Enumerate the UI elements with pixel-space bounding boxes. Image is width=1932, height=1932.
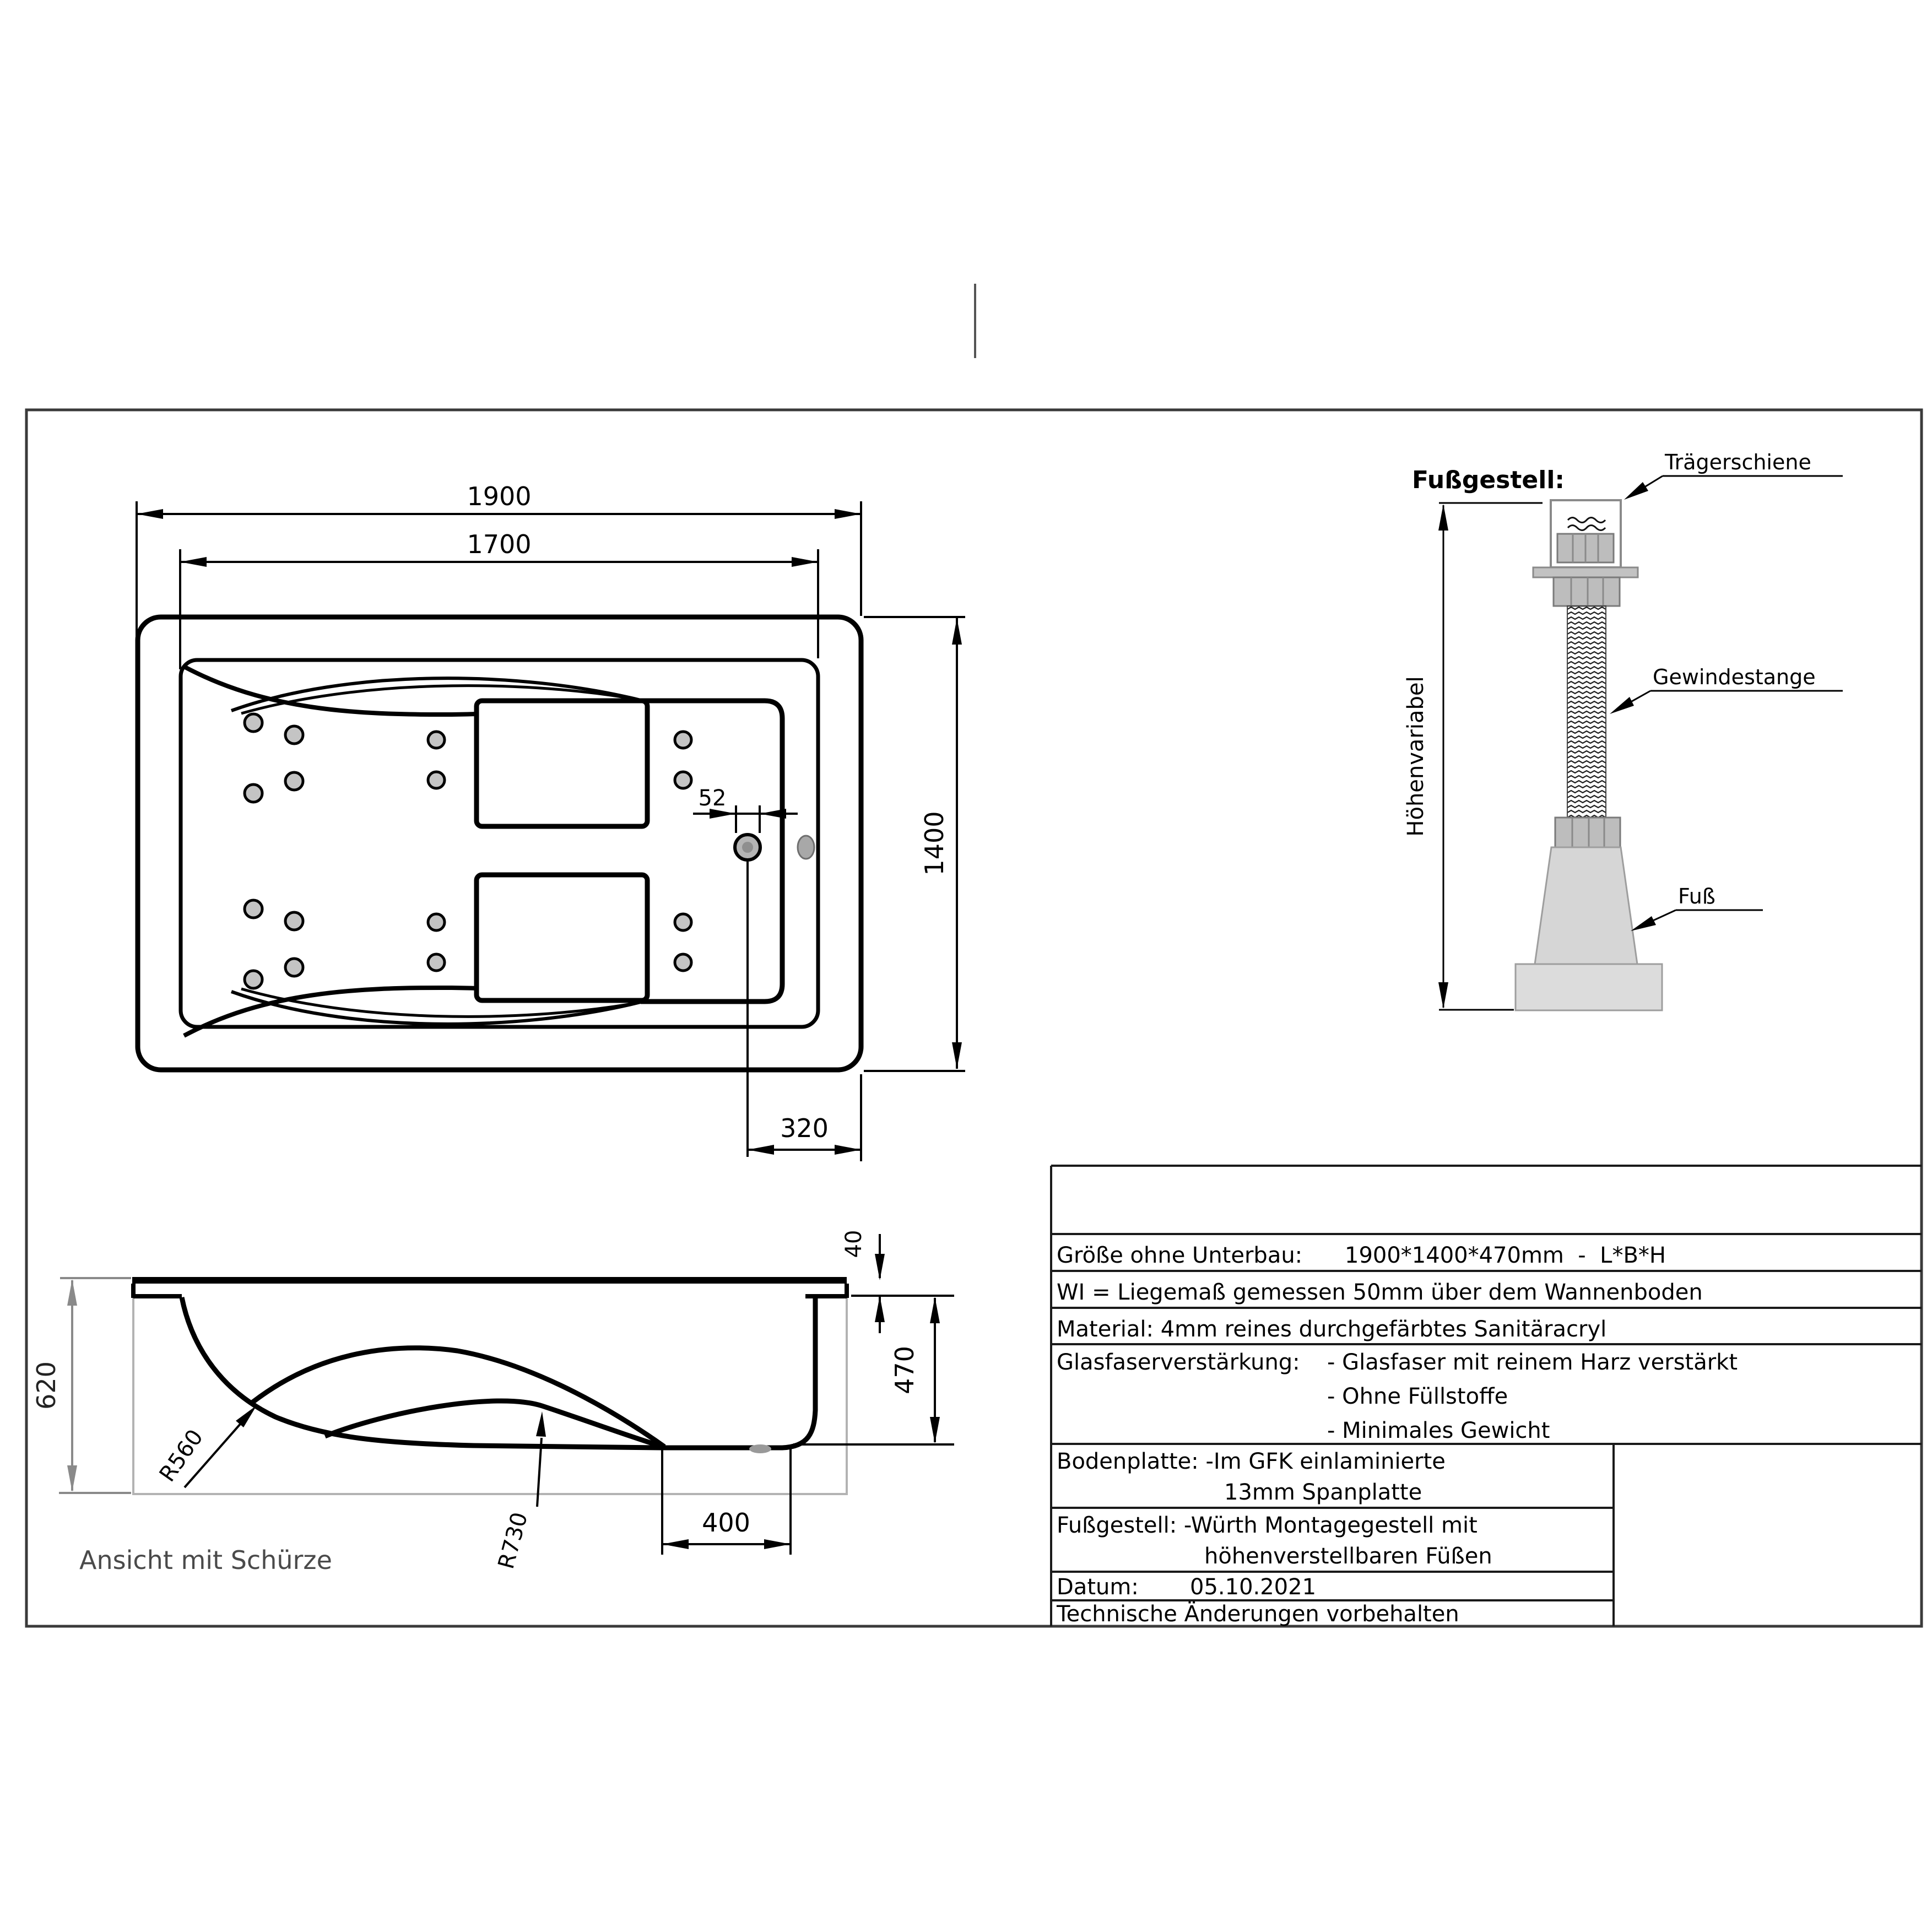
technical-drawing-page: 1900 1700 1400 52 bbox=[0, 0, 1932, 1932]
dim-1900-value: 1900 bbox=[467, 481, 531, 511]
jet bbox=[245, 784, 262, 802]
dim-1400-value: 1400 bbox=[919, 811, 949, 875]
hex-nut-middle bbox=[1554, 577, 1620, 606]
dim-400 bbox=[662, 1449, 791, 1555]
seat-curve-back bbox=[251, 1348, 664, 1447]
rail-label: Trägerschiene bbox=[1664, 450, 1811, 474]
spec-baseplate-line2: 13mm Spanplatte bbox=[1224, 1480, 1422, 1505]
jet bbox=[675, 954, 691, 971]
dim-1400 bbox=[864, 617, 965, 1071]
spec-fiberglass-item2: - Ohne Füllstoffe bbox=[1327, 1384, 1508, 1409]
jet bbox=[428, 914, 445, 930]
tub-shell-profile bbox=[182, 1297, 815, 1448]
spec-footframe-line2: höhenverstellbaren Füßen bbox=[1204, 1544, 1492, 1569]
dim-height-variable bbox=[1438, 503, 1543, 1010]
side-view-caption: Ansicht mit Schürze bbox=[79, 1545, 332, 1575]
bathtub-technical-drawing: 1900 1700 1400 52 bbox=[0, 0, 1932, 1932]
foot-assembly-detail: Fußgestell: Höhenvariabel bbox=[1403, 450, 1843, 1010]
dim-1700-value: 1700 bbox=[467, 529, 531, 559]
jet bbox=[245, 971, 262, 988]
dim-40 bbox=[875, 1234, 885, 1333]
spec-size-value: 1900*1400*470mm - L*B*H bbox=[1345, 1243, 1666, 1268]
rim-lip-right bbox=[805, 1284, 847, 1298]
jet bbox=[428, 954, 445, 971]
jet bbox=[285, 772, 303, 790]
drain-center bbox=[742, 842, 753, 853]
foot-cone bbox=[1535, 847, 1637, 964]
headrest-pillow-top bbox=[477, 701, 647, 826]
headrest-pillow-bottom bbox=[477, 875, 647, 1000]
jet bbox=[285, 912, 303, 930]
spec-date-label: Datum: bbox=[1057, 1574, 1139, 1600]
hex-nut-bottom bbox=[1555, 818, 1620, 847]
spec-disclaimer: Technische Änderungen vorbehalten bbox=[1056, 1600, 1459, 1627]
spec-size-label: Größe ohne Unterbau: bbox=[1057, 1243, 1302, 1268]
jet bbox=[245, 714, 262, 732]
radius-r730-value: R730 bbox=[494, 1509, 533, 1571]
jet bbox=[428, 772, 445, 788]
bathtub-top-view: 1900 1700 1400 52 bbox=[137, 481, 965, 1161]
foot-label: Fuß bbox=[1678, 884, 1715, 908]
spec-date-value: 05.10.2021 bbox=[1190, 1574, 1316, 1600]
dim-620 bbox=[59, 1278, 131, 1493]
jet bbox=[675, 732, 691, 748]
spec-footframe-line1: Fußgestell: -Würth Montagegestell mit bbox=[1057, 1513, 1478, 1538]
rim-bar bbox=[132, 1277, 847, 1284]
overflow bbox=[798, 836, 814, 859]
jet bbox=[245, 900, 262, 918]
hex-nut-top bbox=[1557, 534, 1614, 562]
dim-52-value: 52 bbox=[699, 786, 727, 811]
rim-lip-left bbox=[133, 1284, 182, 1298]
washer-plate bbox=[1533, 567, 1638, 577]
jet bbox=[285, 959, 303, 976]
radius-r730 bbox=[536, 1411, 546, 1507]
jet bbox=[675, 772, 691, 788]
foot-detail-title: Fußgestell: bbox=[1412, 466, 1565, 494]
dim-320-value: 320 bbox=[780, 1113, 829, 1143]
apron-outline bbox=[133, 1285, 847, 1494]
height-variable-label: Höhenvariabel bbox=[1403, 676, 1428, 836]
spec-table: Größe ohne Unterbau: 1900*1400*470mm - L… bbox=[1051, 1166, 1922, 1627]
jet bbox=[428, 732, 445, 748]
spec-material: Material: 4mm reines durchgefärbtes Sani… bbox=[1057, 1317, 1606, 1342]
dim-620-value: 620 bbox=[31, 1361, 61, 1410]
leader-rod bbox=[1610, 691, 1843, 714]
dim-470-value: 470 bbox=[890, 1346, 919, 1394]
spec-fiberglass-label: Glasfaserverstärkung: bbox=[1057, 1350, 1300, 1375]
drain-side bbox=[749, 1444, 771, 1453]
spec-wi-note: WI = Liegemaß gemessen 50mm über dem Wan… bbox=[1057, 1280, 1703, 1305]
spec-baseplate-line1: Bodenplatte: -Im GFK einlaminierte bbox=[1057, 1449, 1446, 1474]
foot-base-plate bbox=[1516, 964, 1662, 1010]
jet bbox=[285, 726, 303, 744]
bathtub-side-view: 620 40 470 400 bbox=[31, 1230, 954, 1575]
leader-foot bbox=[1631, 910, 1763, 931]
radius-r560-value: R560 bbox=[155, 1425, 208, 1487]
threaded-rod bbox=[1567, 606, 1606, 818]
spec-fiberglass-item3: - Minimales Gewicht bbox=[1327, 1418, 1550, 1443]
rod-label: Gewindestange bbox=[1653, 665, 1816, 689]
spec-fiberglass-item1: - Glasfaser mit reinem Harz verstärkt bbox=[1327, 1350, 1738, 1375]
leader-rail bbox=[1624, 476, 1843, 500]
thread-squiggle bbox=[1568, 518, 1605, 531]
dim-40-value: 40 bbox=[841, 1230, 867, 1258]
dim-400-value: 400 bbox=[702, 1508, 750, 1538]
jet bbox=[675, 914, 691, 930]
